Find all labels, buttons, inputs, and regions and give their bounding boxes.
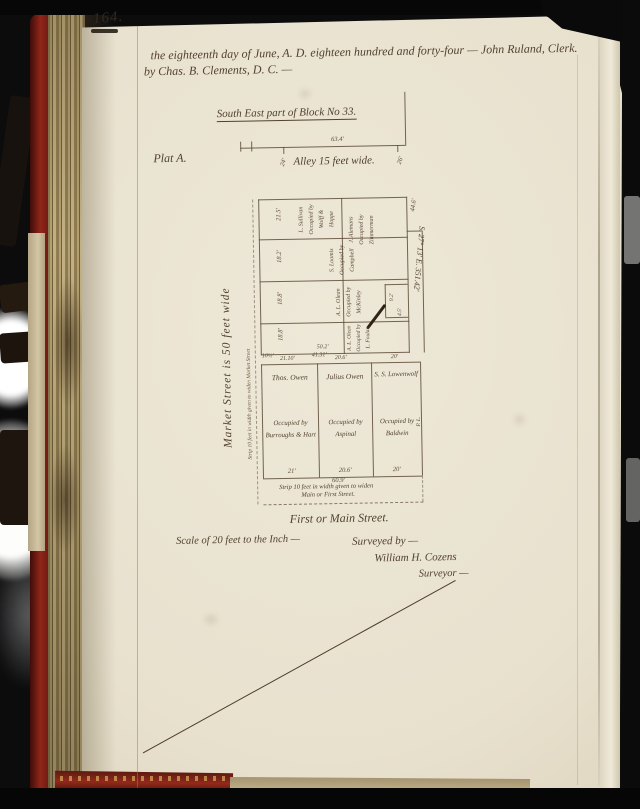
measure-label: 18.2' <box>276 250 283 263</box>
strip-dashed-line <box>422 476 423 502</box>
header-line-1: the eighteenth day of June, A. D. eighte… <box>150 41 577 63</box>
measure-label: 20' <box>391 354 398 360</box>
plat-line <box>240 142 241 152</box>
surveyor-name: William H. Cozens <box>374 551 456 564</box>
header-line-2: by Chas. B. Clements, D. C. — <box>144 62 293 80</box>
measure-label: 44.6' <box>409 198 418 212</box>
plat-line <box>397 145 398 152</box>
strip-dashed-line <box>263 502 423 506</box>
market-street-label: Market Street is 50 feet wide <box>219 270 234 448</box>
corner-mark: P. L. <box>416 417 422 427</box>
bearing-label: S. 27° 13' E. 351.42' <box>412 226 427 292</box>
lower-lot-occupant: Occupied by Baldwin <box>373 416 421 441</box>
measure-label: 4.5' <box>397 308 403 316</box>
occ-line: Baldwin <box>373 428 421 441</box>
upper-lot-text: A. L. Olean Occupied by L. Foulan <box>345 323 374 351</box>
measure-label: 18.8' <box>277 292 284 305</box>
lot-line: A. L. Olean <box>334 283 345 321</box>
measure-label: 21.5' <box>275 208 282 221</box>
lower-lot-owner: S. S. Lowenwolf <box>372 371 420 379</box>
surveyed-by-label: Surveyed by — <box>352 535 418 548</box>
lot-line: Zimmerman <box>367 205 378 253</box>
alley-width-mark: 24' <box>279 158 288 168</box>
lot-line: Wolff & Hoppe <box>317 201 338 237</box>
occ-line: Occupied by <box>319 416 372 429</box>
measure-label: 9.2' <box>389 293 395 301</box>
diagonal-ink-line <box>143 580 456 753</box>
lot-line: L. Foulan <box>364 323 374 351</box>
measure-label: 20.6' <box>339 467 352 474</box>
lot-line: Occupied by <box>344 283 355 321</box>
handwritten-content: the eighteenth day of June, A. D. eighte… <box>0 0 640 809</box>
plat-line <box>258 197 407 201</box>
measure-label: 10½' <box>262 353 274 359</box>
plat-line <box>261 362 420 366</box>
measure-label: 18.8' <box>277 328 284 341</box>
plat-line <box>385 284 408 285</box>
lower-lot-occupant: Occupied by Aspinal <box>319 416 372 441</box>
plat-line <box>240 145 405 149</box>
strip-note: Main or First Street. <box>301 491 355 499</box>
plat-line <box>385 317 408 318</box>
street-label: First or Main Street. <box>290 510 389 527</box>
occ-line: Aspinal <box>319 429 372 442</box>
plat-title: South East part of Block No 33. <box>217 106 357 122</box>
lot-line: Campbell <box>347 241 358 279</box>
measure-label: 20.6' <box>335 355 347 361</box>
occ-line: Occupied by <box>373 416 421 429</box>
plat-line <box>385 284 387 317</box>
measure-label: 21' <box>288 468 296 475</box>
upper-lot-text: A. L. Olean Occupied by McKinley <box>334 283 365 322</box>
measure-label: 41.31' <box>312 352 327 358</box>
plat-letter-label: Plat A. <box>153 151 186 167</box>
lot-line: Occupied by <box>337 241 348 279</box>
lower-lot-owner: Thos. Owen <box>262 372 317 382</box>
lot-line: A. L. Olean <box>345 324 355 352</box>
plat-line <box>251 141 252 151</box>
surveyor-title: Surveyor — <box>419 568 469 580</box>
strip-note: Strip 10 feet in width given to widen <box>279 482 373 491</box>
measure-label: 21.10' <box>280 356 295 362</box>
measure-label: 20' <box>393 466 401 473</box>
occ-line: Burroughs & Hart <box>263 430 318 443</box>
book-photo: 164. the eighteenth day of June, A. D. e… <box>0 0 640 809</box>
occ-line: Occupied by <box>263 417 318 430</box>
alley-label: Alley 15 feet wide. <box>293 154 374 167</box>
plat-line <box>283 147 284 154</box>
plat-line <box>260 279 409 283</box>
upper-lot-text: L. Sullivan Occupied by Wolff & Hoppe <box>296 201 337 238</box>
plat-line <box>259 237 408 241</box>
plat-line <box>406 197 410 353</box>
lower-lot-occupant: Occupied by Burroughs & Hart <box>263 417 318 442</box>
lot-line: McKinley <box>354 283 365 321</box>
scale-label: Scale of 20 feet to the Inch — <box>176 534 300 547</box>
plat-line <box>260 321 409 325</box>
lot-line: S. Loomis <box>327 241 338 279</box>
plat-line <box>258 199 262 355</box>
measure-label: 50.2' <box>317 344 329 350</box>
lower-lot-owner: Julius Owen <box>318 371 371 381</box>
market-strip-note: Strip 10 feet in width given to widen Ma… <box>244 260 253 460</box>
lot-line: Occupied by <box>355 324 365 352</box>
alley-width-mark: 26' <box>396 156 405 166</box>
plat-line <box>404 92 406 146</box>
measure-label: 63.4' <box>331 136 344 143</box>
lot-line: L. Sullivan <box>296 202 307 238</box>
lot-line: Occupied by <box>306 201 317 237</box>
upper-lot-text: S. Loomis Occupied by Campbell <box>327 241 358 280</box>
